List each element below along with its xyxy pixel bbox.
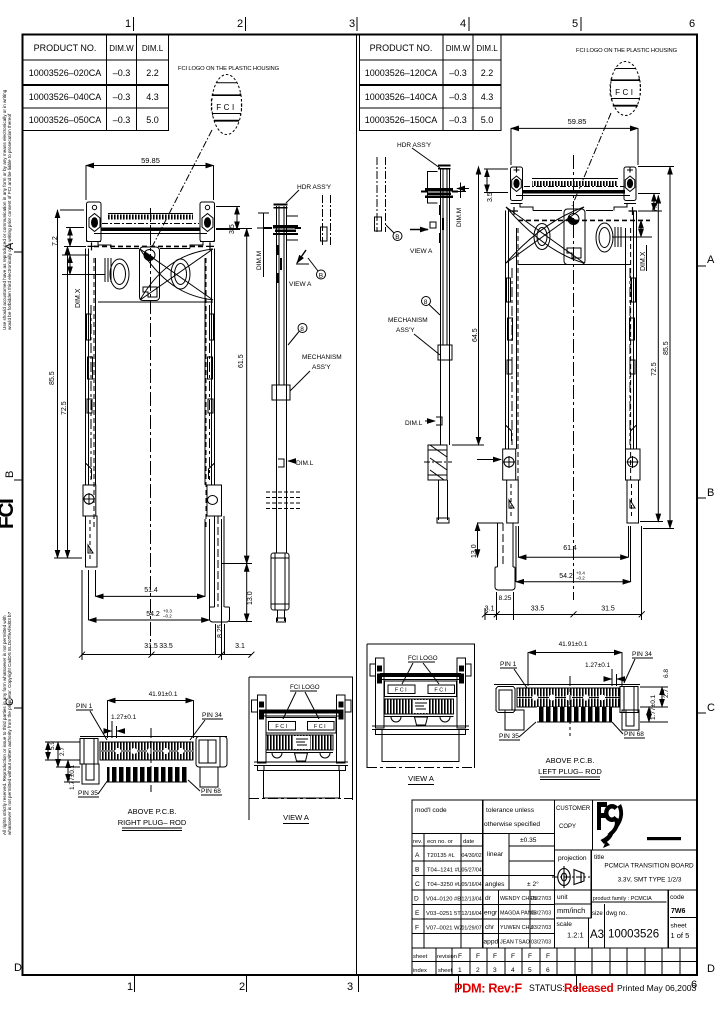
svg-text:DIM.M: DIM.M [456,208,463,227]
svg-text:otherwise specified: otherwise specified [484,821,540,828]
svg-text:F: F [415,925,419,932]
svg-text:DIM.L: DIM.L [142,44,164,53]
svg-text:10003526–120CA: 10003526–120CA [365,68,438,78]
svg-text:4: 4 [460,18,466,30]
svg-text:VIEW A: VIEW A [289,281,312,288]
svg-text:85.5: 85.5 [663,341,670,355]
svg-text:FCI LOGO ON THE PLASTIC HOUSIN: FCI LOGO ON THE PLASTIC HOUSING [178,66,280,72]
svg-text:FCI: FCI [0,499,18,529]
svg-text:3: 3 [349,18,355,30]
svg-text:2.2: 2.2 [481,68,494,78]
svg-text:A: A [415,852,420,859]
svg-text:3: 3 [347,981,353,993]
svg-text:LEFT PLUG– ROD: LEFT PLUG– ROD [538,767,602,776]
svg-text:4.3: 4.3 [146,92,159,102]
svg-text:10003526–020CA: 10003526–020CA [29,68,102,78]
svg-text:angles: angles [485,881,505,888]
svg-text:±0.35: ±0.35 [520,837,537,844]
svg-text:01/29/07: 01/29/07 [462,926,482,932]
svg-text:D: D [14,962,22,974]
svg-text:54.2: 54.2 [146,611,160,618]
svg-text:03/27/03: 03/27/03 [531,911,551,917]
svg-text:chr: chr [485,924,495,931]
svg-text:ASS'Y: ASS'Y [396,327,415,334]
svg-text:10003526–040CA: 10003526–040CA [29,92,102,102]
svg-text:4.3: 4.3 [481,92,494,102]
svg-text:4: 4 [511,967,515,974]
svg-text:1.77±0.1: 1.77±0.1 [69,764,76,790]
svg-text:61.5: 61.5 [238,354,245,368]
svg-text:1.27±0.1: 1.27±0.1 [585,662,611,669]
svg-text:ABOVE P.C.B.: ABOVE P.C.B. [546,756,595,765]
svg-text:–0.3: –0.3 [449,115,467,125]
svg-text:PIN 35: PIN 35 [78,790,98,797]
svg-text:index: index [413,968,427,974]
svg-text:sheet: sheet [438,968,453,974]
svg-text:mm/inch: mm/inch [557,906,585,915]
svg-text:12/16/04: 12/16/04 [462,911,482,917]
svg-text:10003526–150CA: 10003526–150CA [365,115,438,125]
svg-text:MECHANISM: MECHANISM [302,354,342,361]
svg-text:1 of 5: 1 of 5 [671,931,690,940]
svg-text:HDR ASS'Y: HDR ASS'Y [397,142,432,149]
svg-text:PRODUCT NO.: PRODUCT NO. [34,43,97,53]
svg-text:V04–0120 #B: V04–0120 #B [426,897,461,903]
svg-text:5.0: 5.0 [481,115,494,125]
svg-text:PIN 68: PIN 68 [624,731,644,738]
svg-text:1: 1 [125,18,131,30]
svg-text:V03–0251 5T: V03–0251 5T [426,911,461,917]
svg-text:FCI LOGO ON THE PLASTIC HOUSIN: FCI LOGO ON THE PLASTIC HOUSING [576,48,678,54]
svg-text:C: C [707,702,715,714]
svg-text:dwg no.: dwg no. [606,911,627,917]
svg-text:PIN 35: PIN 35 [499,733,519,740]
svg-text:code: code [670,894,685,901]
svg-text:ASS'Y: ASS'Y [312,364,331,371]
svg-text:YUWEN CHU: YUWEN CHU [500,925,533,931]
svg-text:FCI: FCI [314,724,327,730]
svg-text:FCI LOGO: FCI LOGO [408,655,438,662]
svg-text:3: 3 [493,967,497,974]
svg-text:61.4: 61.4 [563,545,577,552]
svg-text:13.0: 13.0 [247,591,254,605]
svg-text:size: size [592,911,603,917]
svg-text:6.8: 6.8 [663,669,670,678]
svg-text:F: F [476,953,480,960]
svg-text:5.0: 5.0 [146,115,159,125]
svg-text:PIN 1: PIN 1 [76,703,93,710]
svg-text:33.5: 33.5 [531,606,545,613]
svg-text:41.91±0.1: 41.91±0.1 [149,691,178,698]
svg-text:03/27/03: 03/27/03 [531,940,551,946]
svg-text:1: 1 [458,967,462,974]
svg-text:–0.2: –0.2 [163,614,172,619]
svg-text:2: 2 [237,18,243,30]
svg-text:would be forbidden third elect: would be forbidden third electronically … [7,113,12,330]
svg-text:scale: scale [557,921,573,928]
svg-text:sheet: sheet [413,954,428,960]
svg-text:B: B [319,273,323,280]
svg-text:41.91±0.1: 41.91±0.1 [559,641,588,648]
svg-text:6: 6 [689,18,695,30]
svg-text:RIGHT PLUG– ROD: RIGHT PLUG– ROD [118,818,187,827]
svg-text:72.5: 72.5 [61,401,68,415]
svg-text:03/27/03: 03/27/03 [531,896,551,902]
svg-text:MECHANISM: MECHANISM [388,317,428,324]
svg-text:FCI: FCI [395,688,408,694]
svg-text:V07–0021 WZ: V07–0021 WZ [426,926,464,932]
svg-text:A: A [707,254,715,266]
svg-text:product family : PCMCIA: product family : PCMCIA [593,896,652,902]
svg-text:PIN 34: PIN 34 [632,651,652,658]
svg-text:T04–3250 #L: T04–3250 #L [427,882,462,888]
svg-text:05/16/04: 05/16/04 [462,882,482,888]
svg-text:8: 8 [300,326,304,333]
svg-text:revision: revision [437,954,457,960]
svg-text:F: F [546,953,550,960]
svg-text:3.1: 3.1 [235,643,245,650]
svg-text:05/27/04: 05/27/04 [462,868,482,874]
svg-text:2: 2 [476,967,480,974]
svg-text:64.5: 64.5 [472,328,479,342]
svg-text:F: F [511,953,515,960]
svg-text:DIM.L: DIM.L [405,420,423,427]
svg-text:1.27±0.1: 1.27±0.1 [111,714,137,721]
svg-text:2.7: 2.7 [663,689,670,698]
svg-text:7W6: 7W6 [671,908,686,915]
svg-text:FCI: FCI [216,103,236,112]
svg-text:FCI: FCI [275,724,288,730]
svg-text:STATUS:: STATUS: [529,983,565,993]
svg-text:date: date [463,839,474,845]
svg-text:D: D [707,963,715,975]
svg-text:whatsoever is not permitted wi: whatsoever is not permitted without writ… [7,611,12,835]
svg-text:T20135 #L: T20135 #L [427,853,455,859]
svg-text:5: 5 [572,18,578,30]
svg-text:3.3V, SMT TYPE 1/2/3: 3.3V, SMT TYPE 1/2/3 [618,877,682,884]
svg-text:COPY: COPY [559,824,576,830]
svg-text:PIN 68: PIN 68 [201,788,221,795]
svg-text:10003526–140CA: 10003526–140CA [365,92,438,102]
svg-text:sheet: sheet [671,923,687,930]
svg-text:–0.2: –0.2 [576,576,585,581]
svg-text:B: B [707,487,714,499]
svg-text:DIM.W: DIM.W [109,44,134,53]
svg-text:2.2: 2.2 [146,68,159,78]
svg-text:F: F [493,953,497,960]
svg-text:54.2: 54.2 [559,573,573,580]
svg-text:13.0: 13.0 [471,544,478,558]
svg-text:C: C [415,881,420,888]
svg-text:engr: engr [484,910,498,917]
svg-text:E: E [415,910,420,917]
svg-text:PIN 1: PIN 1 [500,661,517,668]
svg-text:–0.3: –0.3 [113,68,131,78]
svg-text:appd: appd [484,939,499,946]
svg-text:B: B [415,867,420,874]
svg-text:DIM.W: DIM.W [446,44,471,53]
svg-text:1.2:1: 1.2:1 [567,931,584,940]
svg-text:8.25: 8.25 [499,595,512,602]
svg-text:ABOVE P.C.B.: ABOVE P.C.B. [128,807,177,816]
svg-text:PCMCIA TRANSITION BOARD: PCMCIA TRANSITION BOARD [604,863,694,870]
svg-text:5: 5 [528,967,532,974]
svg-text:mod'l code: mod'l code [415,807,447,814]
svg-text:31.5: 31.5 [144,643,158,650]
svg-text:59.85: 59.85 [141,156,160,165]
svg-text:04/30/02: 04/30/02 [462,853,482,859]
svg-text:DIM.L: DIM.L [296,460,314,467]
svg-text:PRODUCT NO.: PRODUCT NO. [370,43,433,53]
svg-text:10003526–050CA: 10003526–050CA [29,115,102,125]
svg-text:VIEW A: VIEW A [408,774,434,783]
svg-text:B: B [395,234,399,241]
svg-text:–0.3: –0.3 [449,68,467,78]
svg-text:unit: unit [557,894,568,901]
svg-text:8: 8 [424,299,428,306]
svg-text:D: D [414,896,419,903]
svg-text:Released: Released [564,981,614,995]
svg-text:FCI LOGO: FCI LOGO [290,684,320,691]
svg-text:ecn no. or: ecn no. or [427,839,453,845]
svg-text:T04–1241 #L: T04–1241 #L [427,868,462,874]
svg-text:DIM.X: DIM.X [640,251,647,271]
svg-text:PDM: Rev:F: PDM: Rev:F [454,981,522,996]
svg-text:2.7: 2.7 [59,747,66,756]
svg-text:linear: linear [487,851,504,858]
svg-text:tolerance unless: tolerance unless [486,807,535,814]
svg-text:–0.3: –0.3 [113,92,131,102]
svg-text:± 2°: ± 2° [527,880,539,888]
svg-text:A3: A3 [590,929,604,941]
svg-text:VIEW A: VIEW A [410,248,433,255]
svg-text:JEAN TSAO: JEAN TSAO [500,940,530,946]
svg-text:CUSTOMER: CUSTOMER [556,806,591,812]
svg-text:dr: dr [485,895,492,902]
svg-text:8.25: 8.25 [217,624,224,638]
svg-text:03/27/03: 03/27/03 [531,925,551,931]
svg-text:VIEW A: VIEW A [283,813,309,822]
svg-text:2: 2 [239,981,245,993]
svg-text:PIN 34: PIN 34 [202,712,222,719]
svg-text:rev.: rev. [413,839,423,845]
svg-text:B: B [4,471,16,478]
svg-text:projection: projection [558,855,587,862]
svg-text:33.5: 33.5 [159,643,173,650]
svg-text:10003526: 10003526 [608,929,659,941]
svg-text:F: F [528,953,532,960]
svg-text:DIM.M: DIM.M [256,251,263,270]
svg-text:1: 1 [127,981,133,993]
svg-text:85.5: 85.5 [49,371,56,385]
svg-text:1.77±0.1: 1.77±0.1 [650,694,657,720]
svg-text:3.1: 3.1 [485,606,495,613]
svg-text:12/13/04: 12/13/04 [462,897,482,903]
svg-text:59.85: 59.85 [568,117,587,126]
svg-text:DIM.X: DIM.X [75,288,82,308]
svg-text:3.5: 3.5 [487,192,494,202]
svg-text:–0.3: –0.3 [113,115,131,125]
svg-text:title: title [594,854,605,861]
svg-text:6: 6 [546,967,550,974]
svg-text:DIM.L: DIM.L [476,44,498,53]
svg-text:–0.3: –0.3 [449,92,467,102]
svg-text:F: F [458,953,462,960]
svg-text:FCI: FCI [615,88,635,97]
svg-text:31.5: 31.5 [601,606,615,613]
svg-text:72.5: 72.5 [651,362,658,376]
svg-text:FCI: FCI [434,688,447,694]
svg-text:HDR ASS'Y: HDR ASS'Y [297,184,332,191]
svg-text:51.4: 51.4 [144,587,158,594]
svg-text:Printed May 06,2003: Printed May 06,2003 [617,983,697,993]
